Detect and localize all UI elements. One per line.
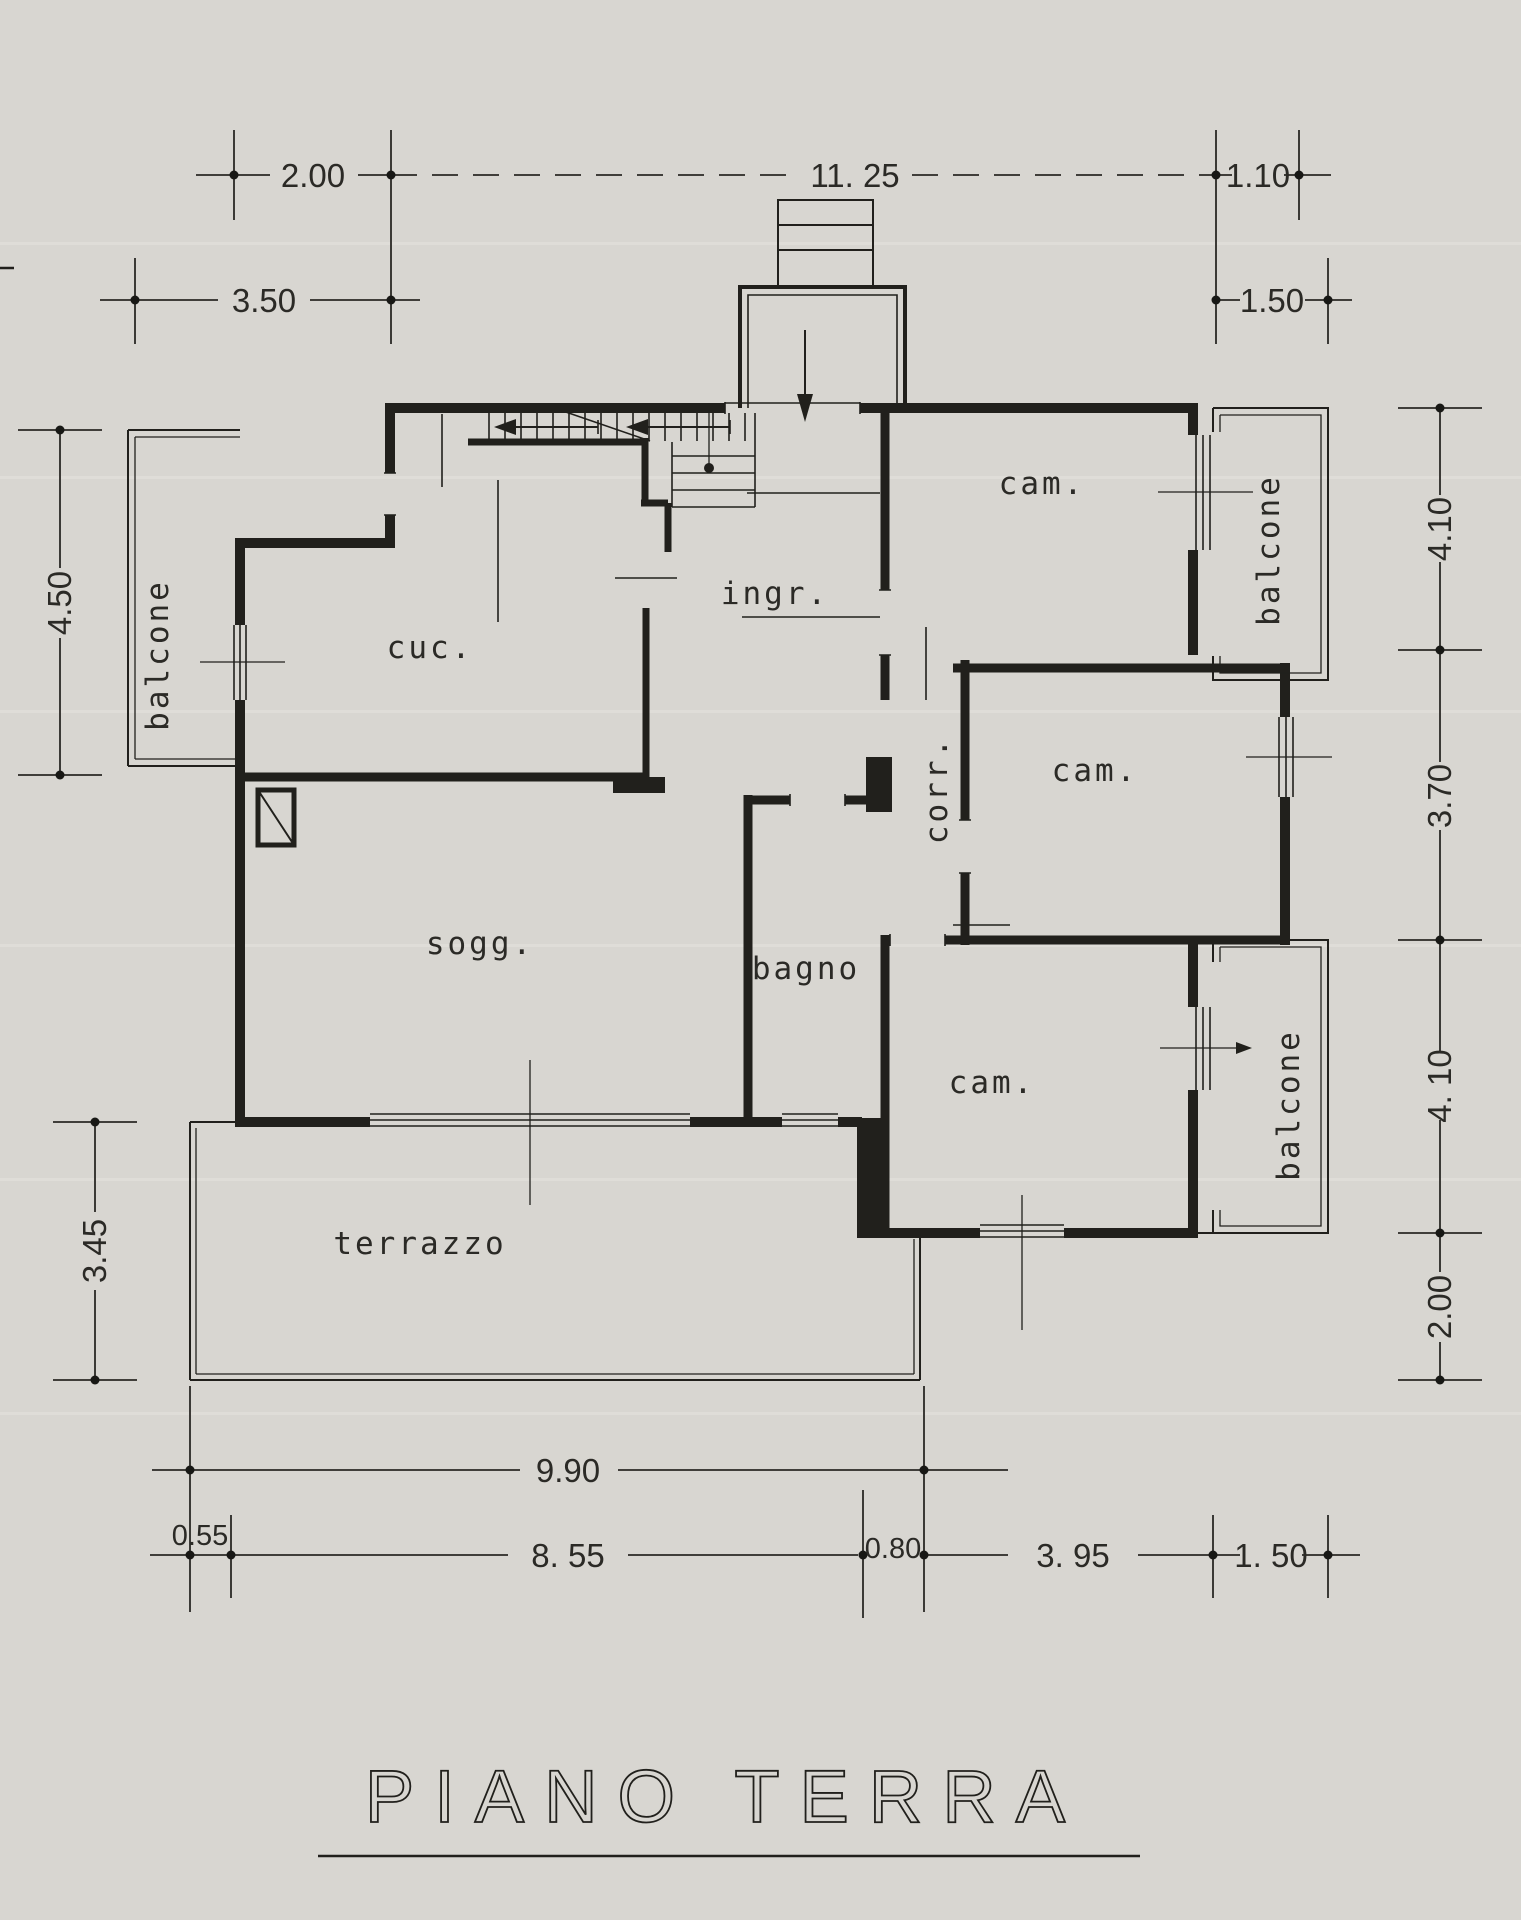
stair-plumb-dot [704,463,714,473]
room-label-balcone-left: balcone [140,579,176,731]
terrace-corner-pier [857,1118,887,1238]
plan-title: PIANO TERRA [365,1755,1085,1838]
dim-bottom-055: 0.55 [172,1520,228,1552]
dim-bottom-990: 9.90 [536,1452,600,1489]
paper-scan-streaks [0,242,1521,1415]
stair-direction-arrow [494,419,598,435]
room-label-bagno: bagno [752,951,860,987]
dim-top-350: 3.50 [232,282,296,319]
dim-right-370: 3.70 [1421,764,1458,828]
stair-direction-arrow-2 [626,419,730,435]
walls [235,403,1290,1238]
dim-top-110: 1.10 [1226,157,1290,194]
staircase [489,410,755,507]
dim-right-410b: 4. 10 [1421,1049,1458,1122]
entry-porch [740,287,905,408]
room-label-terrazzo: terrazzo [333,1226,506,1262]
windows [200,435,1332,1330]
wall-foot-pier [613,777,665,793]
exterior-walls [235,403,1285,1238]
title-block: PIANO TERRA [318,1755,1140,1856]
axis-arrowhead-icon [1236,1042,1252,1054]
dimensions-left: 4.50 3.45 [18,426,137,1385]
dim-right-410a: 4.10 [1421,497,1458,561]
bagno-door-pier [866,757,892,812]
room-labels: cuc. ingr. cam. cam. cam. sogg. bagno te… [140,466,1307,1262]
chimney-block [258,790,294,845]
dim-left-450: 4.50 [41,571,78,635]
dim-top-1125: 11. 25 [810,157,899,194]
entry-direction-arrow [797,330,813,422]
room-label-soggiorno: sogg. [426,926,534,962]
room-label-balcone-top-right: balcone [1251,474,1287,626]
dim-top-150: 1.50 [1240,282,1304,319]
floor-plan-drawing: cuc. ingr. cam. cam. cam. sogg. bagno te… [0,0,1521,1920]
window-bagno-terrazzo [782,1114,838,1126]
door-openings [384,402,1010,946]
floor-plan-sheet: cuc. ingr. cam. cam. cam. sogg. bagno te… [0,0,1521,1920]
room-label-camera-top: cam. [999,466,1086,502]
dim-bottom-855: 8. 55 [531,1537,604,1574]
room-label-ingresso: ingr. [721,576,829,612]
dim-top-200: 2.00 [281,157,345,194]
terrace-parapet [190,1122,920,1380]
room-label-balcone-bottom-right: balcone [1271,1029,1307,1181]
dim-bottom-080: 0.80 [865,1533,921,1565]
balcony-bottom-right-parapet [1193,940,1328,1233]
dim-left-345: 3.45 [76,1219,113,1283]
room-label-camera-middle: cam. [1052,753,1139,789]
dimensions-top: 2.00 11. 25 1.10 3.50 1.50 [100,130,1352,344]
dimensions-bottom: 9.90 0.55 8. 55 0.80 3. 95 1. 50 [150,1386,1360,1618]
room-label-camera-bottom: cam. [949,1065,1036,1101]
dim-bottom-150: 1. 50 [1234,1537,1307,1574]
room-label-cucina: cuc. [387,630,474,666]
dim-bottom-395: 3. 95 [1036,1537,1109,1574]
dimensions-right: 4.10 3.70 4. 10 2.00 [1398,404,1482,1385]
dim-right-200: 2.00 [1421,1275,1458,1339]
room-label-corridoio: corr. [919,736,955,844]
